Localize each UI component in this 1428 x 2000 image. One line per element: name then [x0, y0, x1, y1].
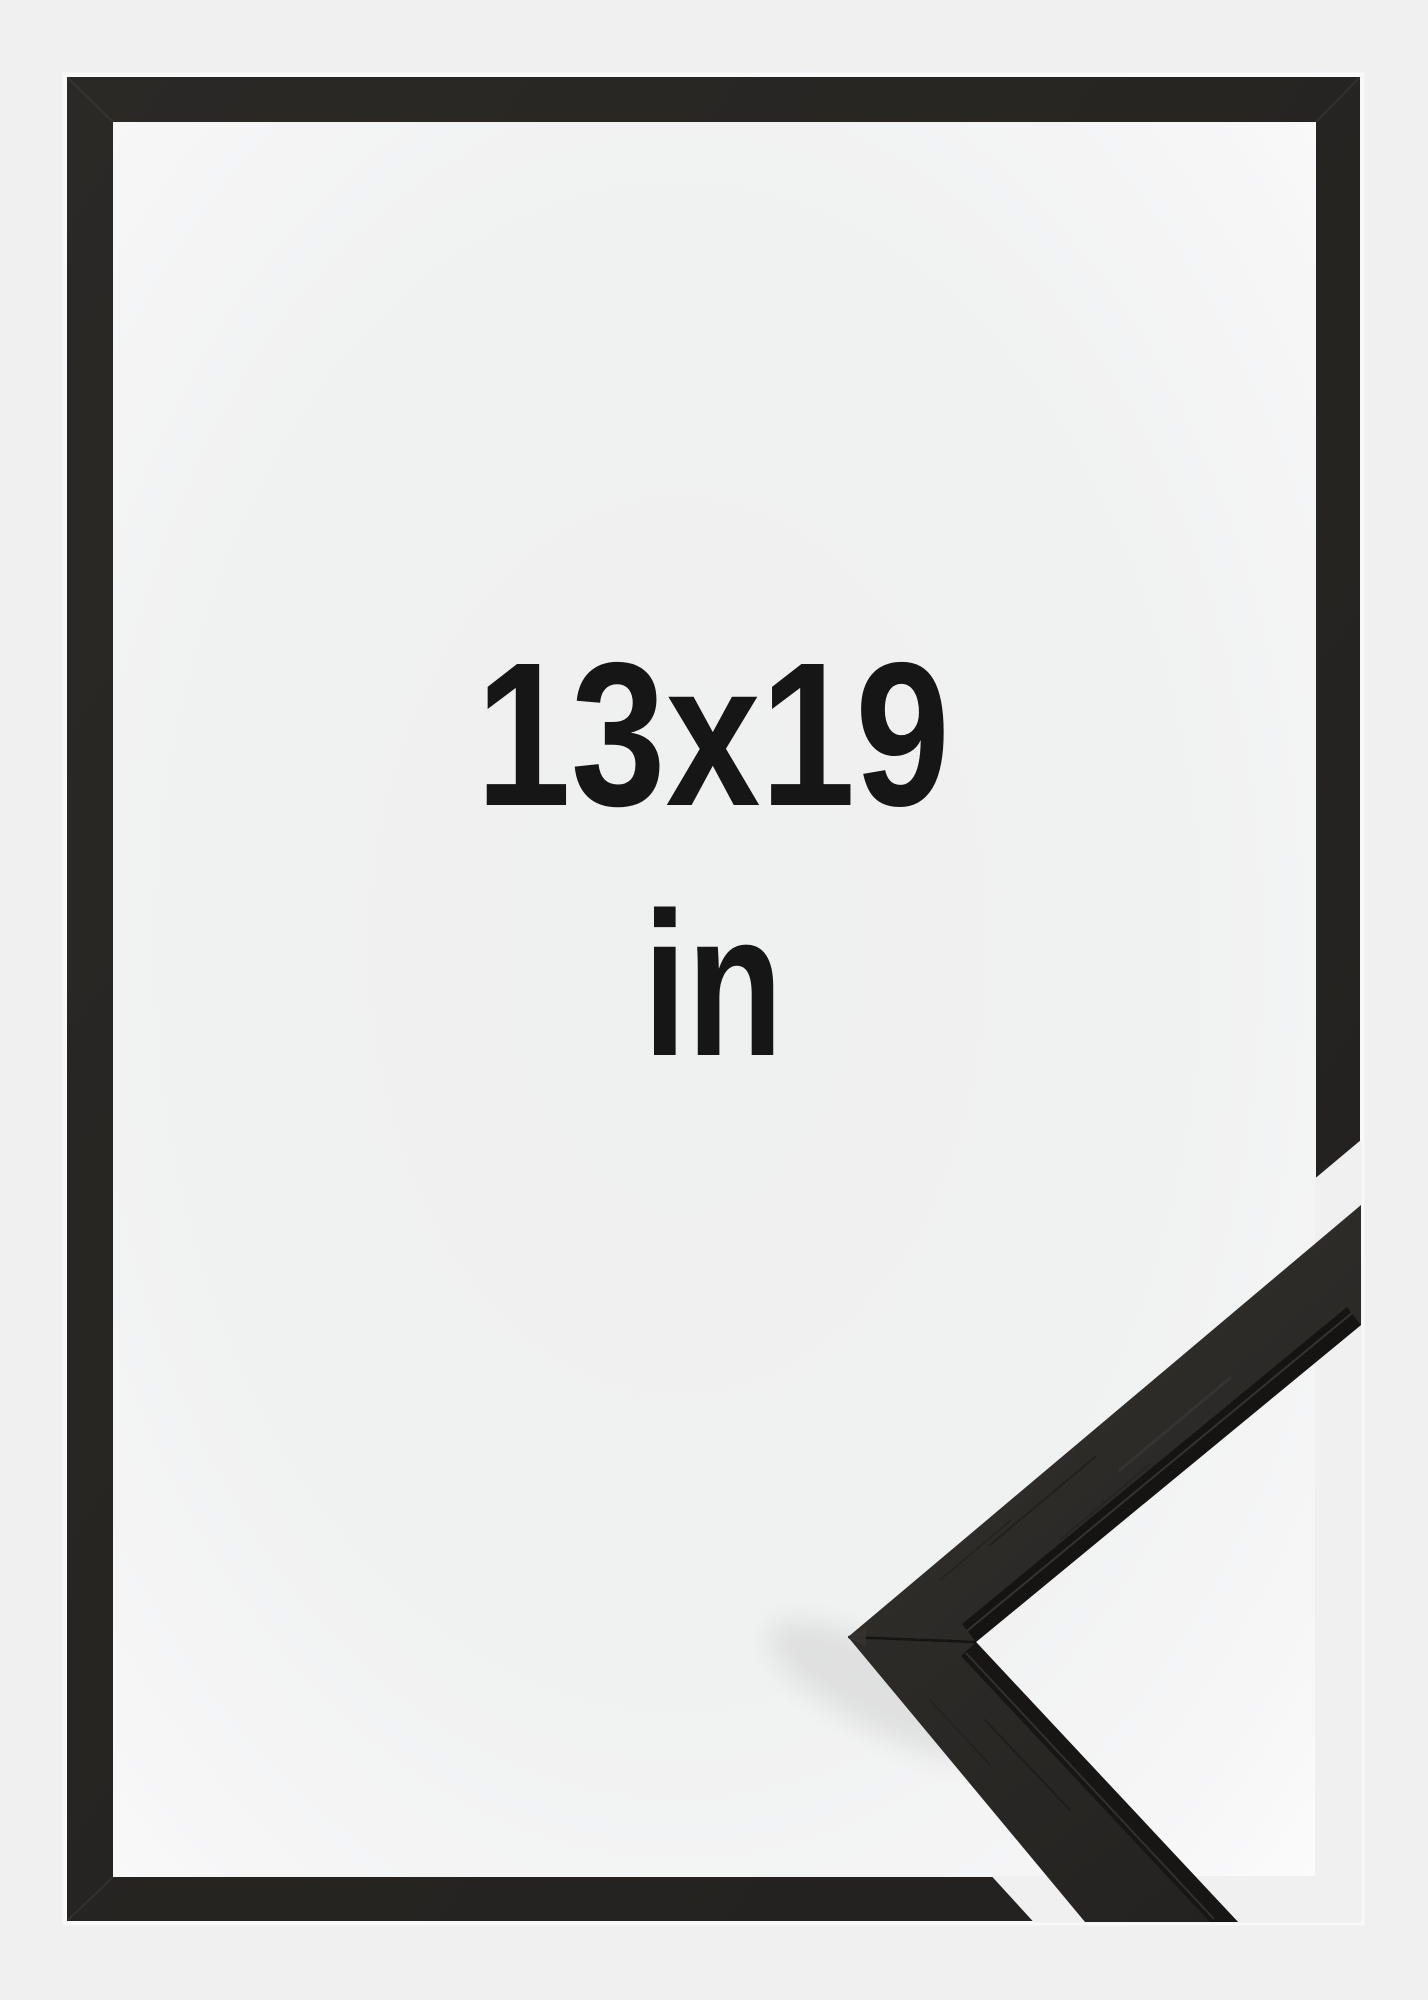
size-unit-text: in: [643, 870, 783, 1099]
frame-product-graphic: 13x19 in: [0, 0, 1428, 2000]
frame-product-image: 13x19 in: [0, 0, 1428, 2000]
size-dimensions-text: 13x19: [476, 620, 950, 849]
